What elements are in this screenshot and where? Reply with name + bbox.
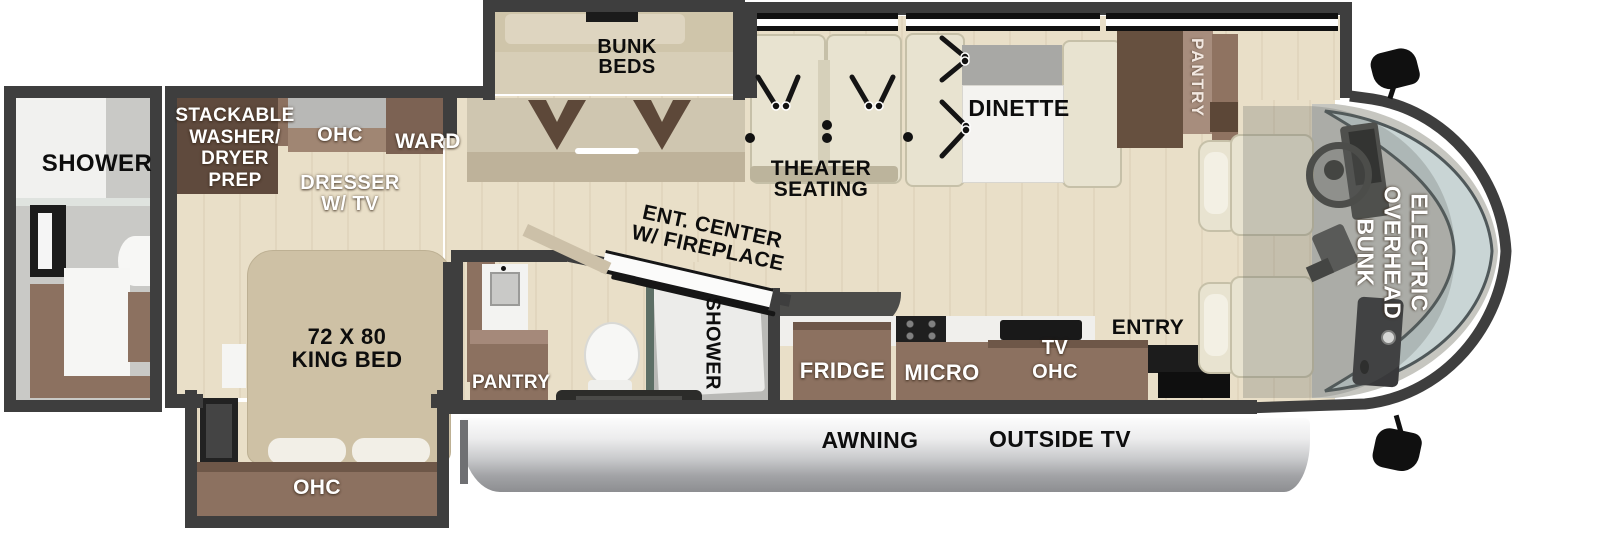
bath-shower-label: SHOWER [701, 289, 722, 399]
king-bed-label: 72 X 80 KING BED [277, 325, 417, 371]
king-bed-line: 72 X 80 [277, 325, 417, 348]
recline-arrows [740, 20, 1140, 170]
rear-vanity-bottom [30, 376, 150, 398]
bunk-beds-label: BUNK BEDS [567, 37, 687, 77]
ward-label: WARD [392, 131, 464, 153]
wall [4, 86, 162, 98]
side-mirror-bottom [1370, 426, 1423, 475]
dresser-line: DRESSER [300, 173, 400, 194]
theater-seating-label: THEATER SEATING [751, 158, 891, 200]
shower-glass-door [646, 278, 654, 396]
overhead-bunk-label: ELECTRIC OVERHEAD BUNK [1352, 168, 1433, 338]
overhead-bunk-line: OVERHEAD [1379, 168, 1406, 338]
rear-vanity-left [30, 284, 64, 390]
rear-vanity-counter [64, 268, 130, 392]
washer-dryer-prep-label: STACKABLE WASHER/ DRYER PREP [168, 105, 302, 191]
bedroom-nightstand [222, 344, 246, 388]
wall [483, 0, 745, 12]
rear-cabinet-right [128, 292, 150, 362]
wall [185, 390, 197, 528]
pillow [352, 438, 430, 464]
rear-shower-label: SHOWER [30, 151, 164, 176]
pantry-tall-label: PANTRY [1187, 23, 1207, 133]
slide-window [1106, 26, 1338, 31]
dinette-label: DINETTE [959, 96, 1079, 120]
wall [768, 288, 780, 408]
desk-highlight [575, 148, 639, 154]
overhead-bunk-line: ELECTRIC [1406, 168, 1433, 338]
bath-sink [490, 272, 520, 306]
bunk-line: BEDS [567, 57, 687, 77]
wall [165, 394, 203, 408]
bath-faucet [501, 266, 506, 271]
washer-line: STACKABLE [168, 105, 302, 127]
bedroom-slide-window-glass [206, 404, 232, 458]
wall [185, 516, 449, 528]
bedroom-ohc-label: OHC [310, 125, 370, 146]
wall [451, 250, 463, 408]
bed-slide-ohc-label: OHC [287, 477, 347, 499]
wall [4, 86, 16, 412]
bath-pantry-top [470, 330, 548, 344]
fridge-label: FRIDGE [795, 359, 890, 382]
desk-chair-notch [546, 100, 568, 122]
driver-headrest [1204, 152, 1228, 214]
bunk-light [586, 12, 638, 22]
desk-front [467, 152, 745, 182]
outside-tv-label: OUTSIDE TV [965, 427, 1155, 451]
king-bed-line: KING BED [277, 348, 417, 371]
dresser-line: W/ TV [300, 194, 400, 215]
pillow [268, 438, 346, 464]
awning-bar-end [460, 420, 468, 484]
passenger-headrest [1204, 294, 1228, 356]
micro-label: MICRO [898, 361, 986, 384]
kitchen-tv [1000, 320, 1082, 340]
theater-line: SEATING [751, 179, 891, 200]
wall [165, 86, 457, 98]
wall [4, 400, 162, 412]
dresser-label: DRESSER W/ TV [300, 173, 400, 215]
wall [483, 0, 495, 100]
entry-label: ENTRY [1108, 317, 1188, 339]
wall [150, 86, 162, 412]
washer-line: PREP [168, 170, 302, 192]
desk-chair-notch [651, 100, 673, 122]
fridge-cabinet-top [793, 322, 891, 330]
bath-pantry-label: PANTRY [472, 373, 548, 393]
rear-shower-stall [16, 98, 106, 198]
wall [443, 400, 1257, 414]
wall [443, 86, 495, 98]
bedroom-slide-ohc-top [197, 462, 437, 472]
overhead-bunk-line: BUNK [1352, 168, 1379, 338]
awning-label: AWNING [800, 428, 940, 452]
bunk-line: BUNK [567, 37, 687, 57]
washer-line: WASHER/ [168, 127, 302, 149]
rv-floorplan: SHOWER STACKABLE WASHER/ DRYER PREP OHC … [0, 0, 1600, 537]
wall [451, 250, 567, 262]
washer-line: DRYER [168, 148, 302, 170]
slide-window [1106, 19, 1338, 26]
kitchen-tv-label: TV [1023, 338, 1087, 359]
kitchen-ohc-label: OHC [1023, 362, 1087, 383]
cooktop [896, 316, 946, 344]
theater-line: THEATER [751, 158, 891, 179]
toilet-bowl [584, 322, 640, 388]
rear-window-glass [38, 213, 52, 269]
